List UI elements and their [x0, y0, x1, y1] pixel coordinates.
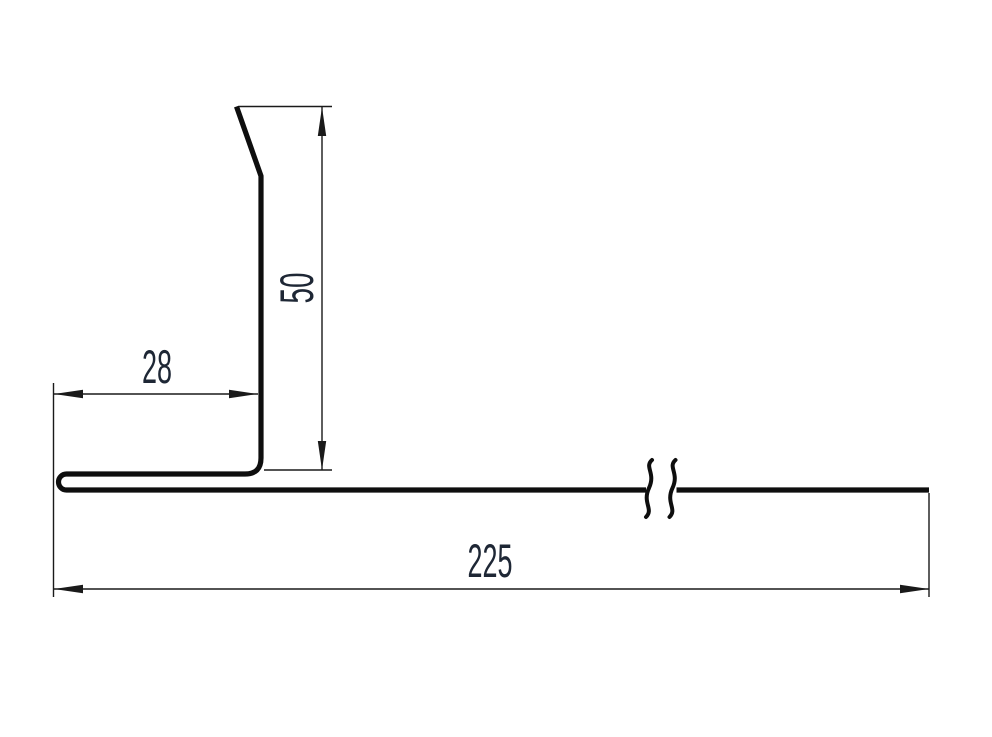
arrow-up-icon [318, 107, 326, 136]
dimension-value-50: 50 [270, 273, 323, 304]
break-symbol-icon [646, 460, 652, 517]
profile-dimension-drawing: 28 50 225 [0, 0, 992, 737]
dimension-value-28: 28 [142, 340, 172, 393]
profile-geometry [59, 107, 930, 518]
arrow-down-icon [318, 441, 326, 470]
profile-outline-left [59, 107, 647, 491]
dimension-arrowheads [54, 107, 929, 593]
technical-drawing-canvas: 28 50 225 [0, 0, 992, 737]
break-symbol-icon [670, 460, 676, 517]
dimension-lines [54, 107, 930, 598]
arrow-left-icon [54, 585, 83, 593]
arrow-right-icon [229, 390, 258, 398]
arrow-right-icon [900, 585, 929, 593]
dimension-value-225: 225 [468, 534, 513, 587]
arrow-left-icon [54, 390, 83, 398]
